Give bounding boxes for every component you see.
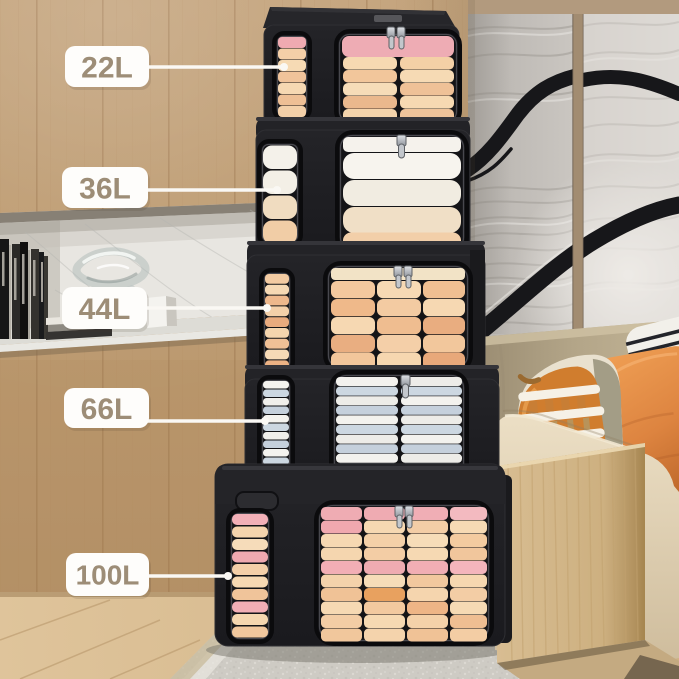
svg-text:22L: 22L (81, 51, 133, 84)
svg-text:36L: 36L (79, 172, 131, 205)
svg-text:66L: 66L (81, 393, 133, 426)
svg-text:44L: 44L (79, 293, 131, 326)
svg-text:100L: 100L (76, 560, 140, 591)
